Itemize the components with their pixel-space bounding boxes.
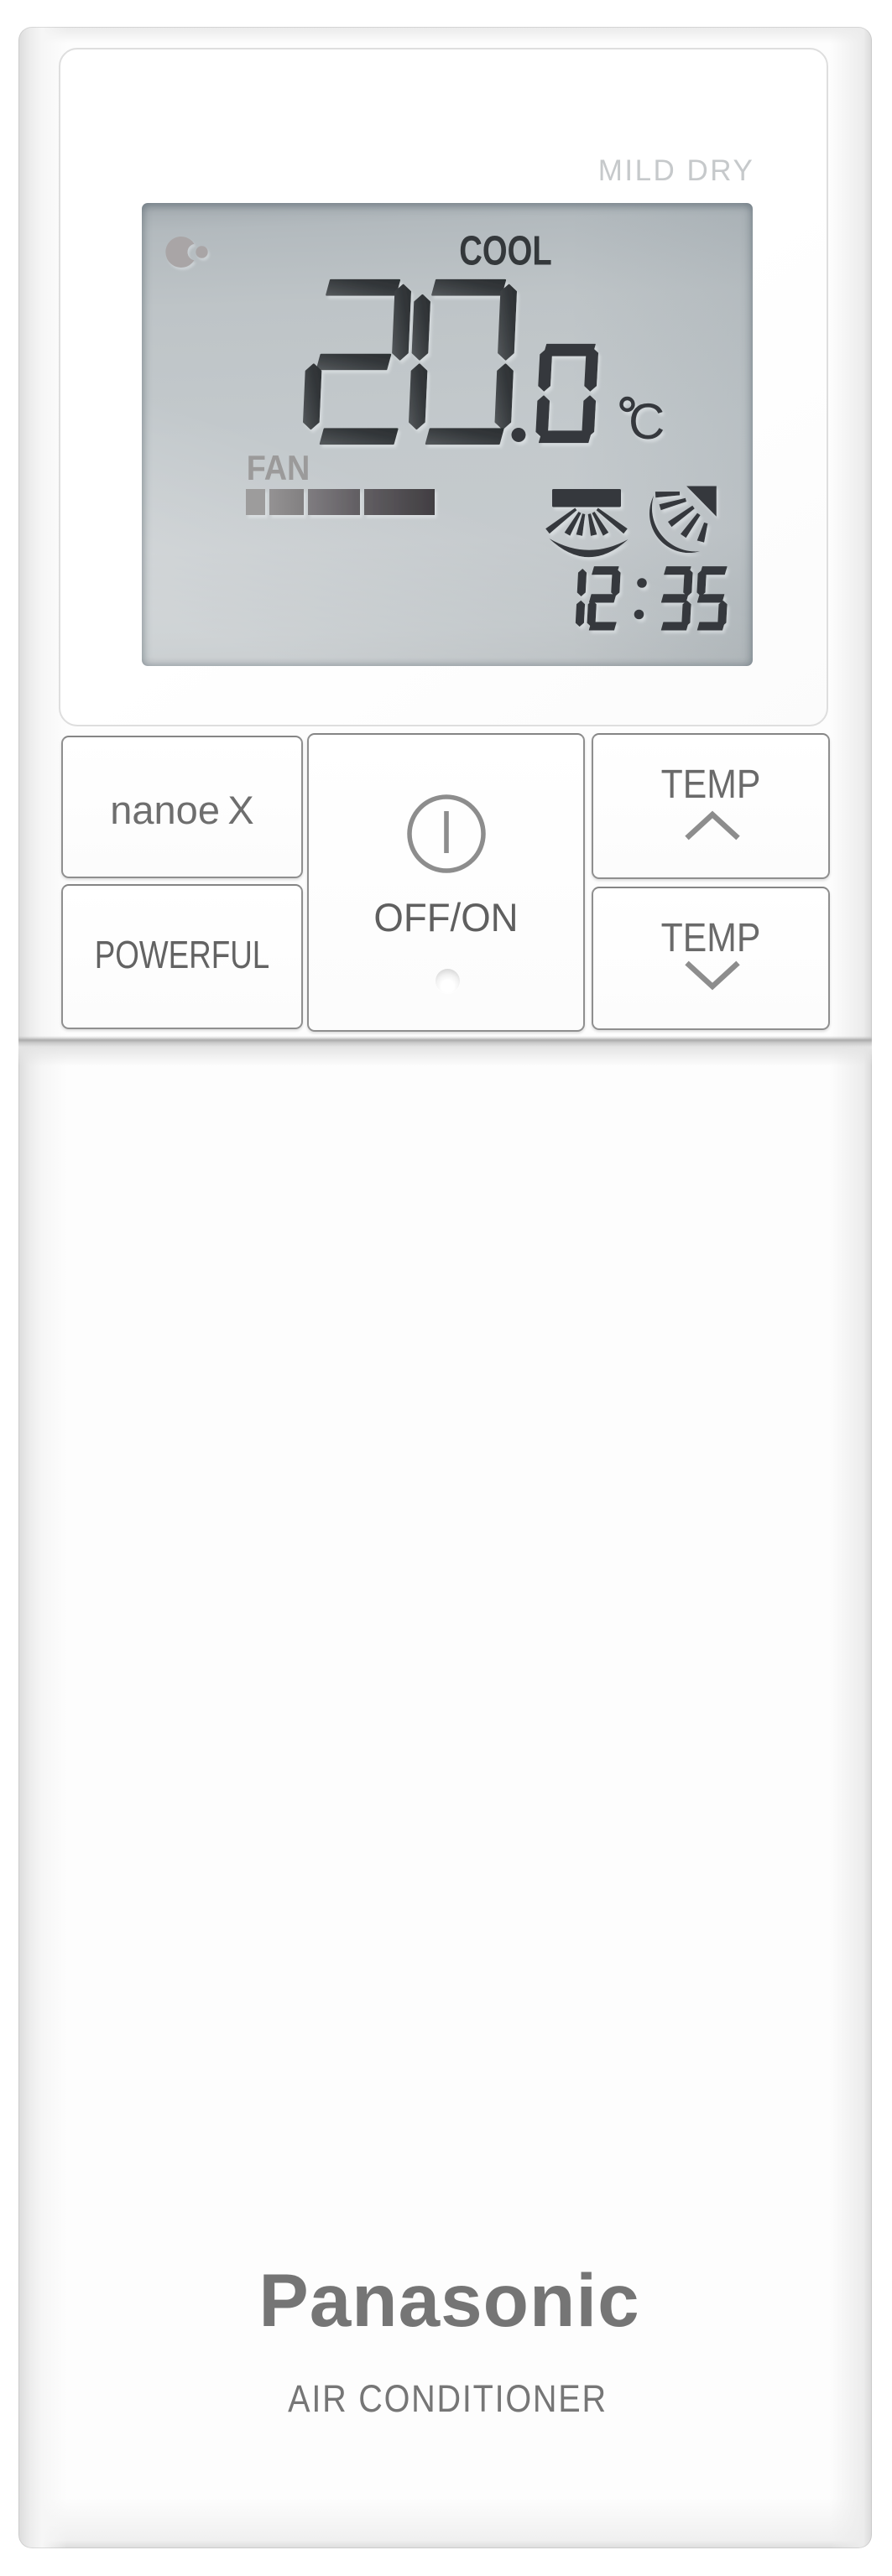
svg-text:C: C (629, 393, 665, 450)
svg-text:COOL: COOL (459, 228, 551, 274)
svg-text:FAN: FAN (247, 449, 310, 487)
